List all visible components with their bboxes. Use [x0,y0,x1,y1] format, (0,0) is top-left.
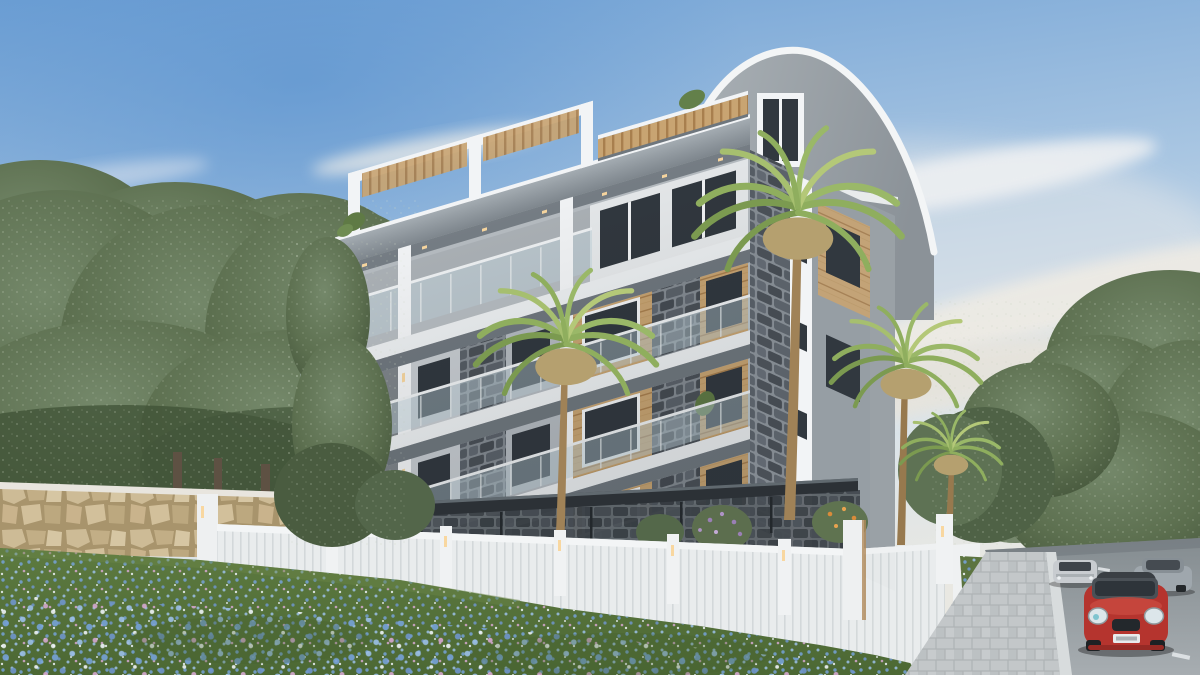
headlight [1145,608,1164,624]
gate-pillar [197,494,218,568]
grille [1112,619,1140,631]
architectural-render [0,0,1200,675]
scene-canvas [0,0,1200,675]
